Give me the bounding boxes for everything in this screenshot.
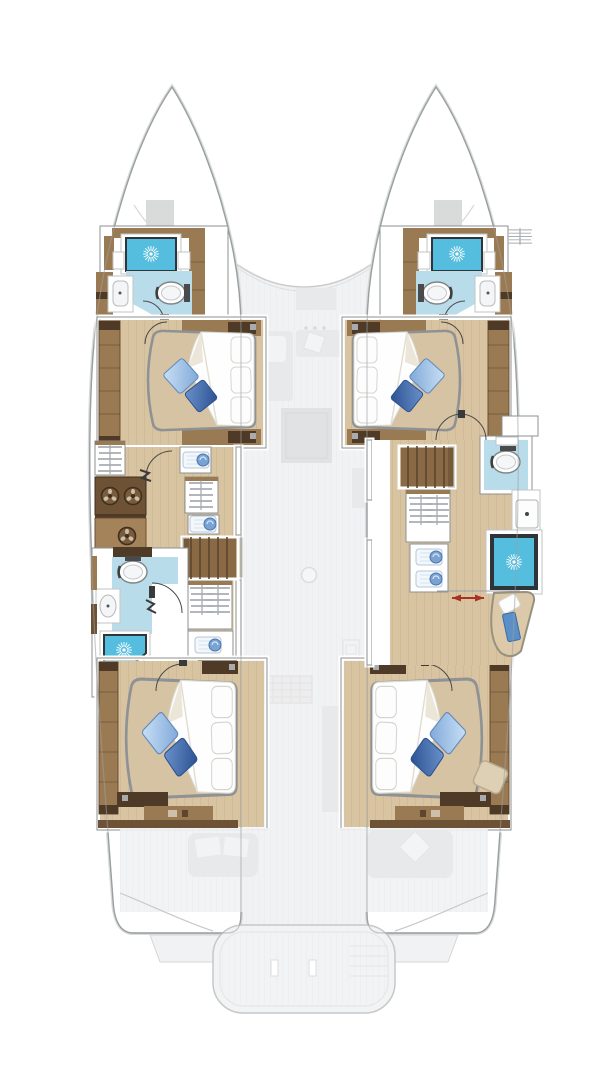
port-companionway-stairs (182, 537, 238, 579)
ghost-hatch (296, 288, 336, 310)
floorplan-stage: Catamaran yacht floor plan — lower deck … (0, 0, 608, 1080)
toilet (119, 561, 147, 583)
linen-shelf (410, 544, 448, 592)
starboard-companionway-stairs (399, 446, 455, 488)
separate-toilet-room (480, 436, 532, 494)
ghost-table-dot (302, 568, 317, 583)
island-double-bed (148, 331, 255, 430)
catamaran-floorplan: Catamaran yacht floor plan — lower deck … (0, 0, 608, 1080)
starboard-bow-hatch (434, 200, 462, 227)
starboard-forward-bathroom (380, 226, 512, 322)
ghost-transom-steps (213, 925, 395, 1013)
square-shower (486, 530, 542, 594)
toilet (157, 282, 185, 304)
washbasin (96, 589, 120, 623)
outboard-hanging-locker (95, 441, 125, 475)
utility-counter (95, 477, 146, 558)
hanging-locker (406, 490, 450, 542)
port-forward-bathroom (96, 226, 228, 322)
toilet (492, 451, 520, 473)
island-double-bed (126, 679, 236, 798)
wardrobe-shelving (99, 321, 120, 445)
port-bow-hatch (146, 200, 174, 227)
wardrobe-shelving (99, 662, 118, 814)
ghost-rug (281, 408, 332, 463)
